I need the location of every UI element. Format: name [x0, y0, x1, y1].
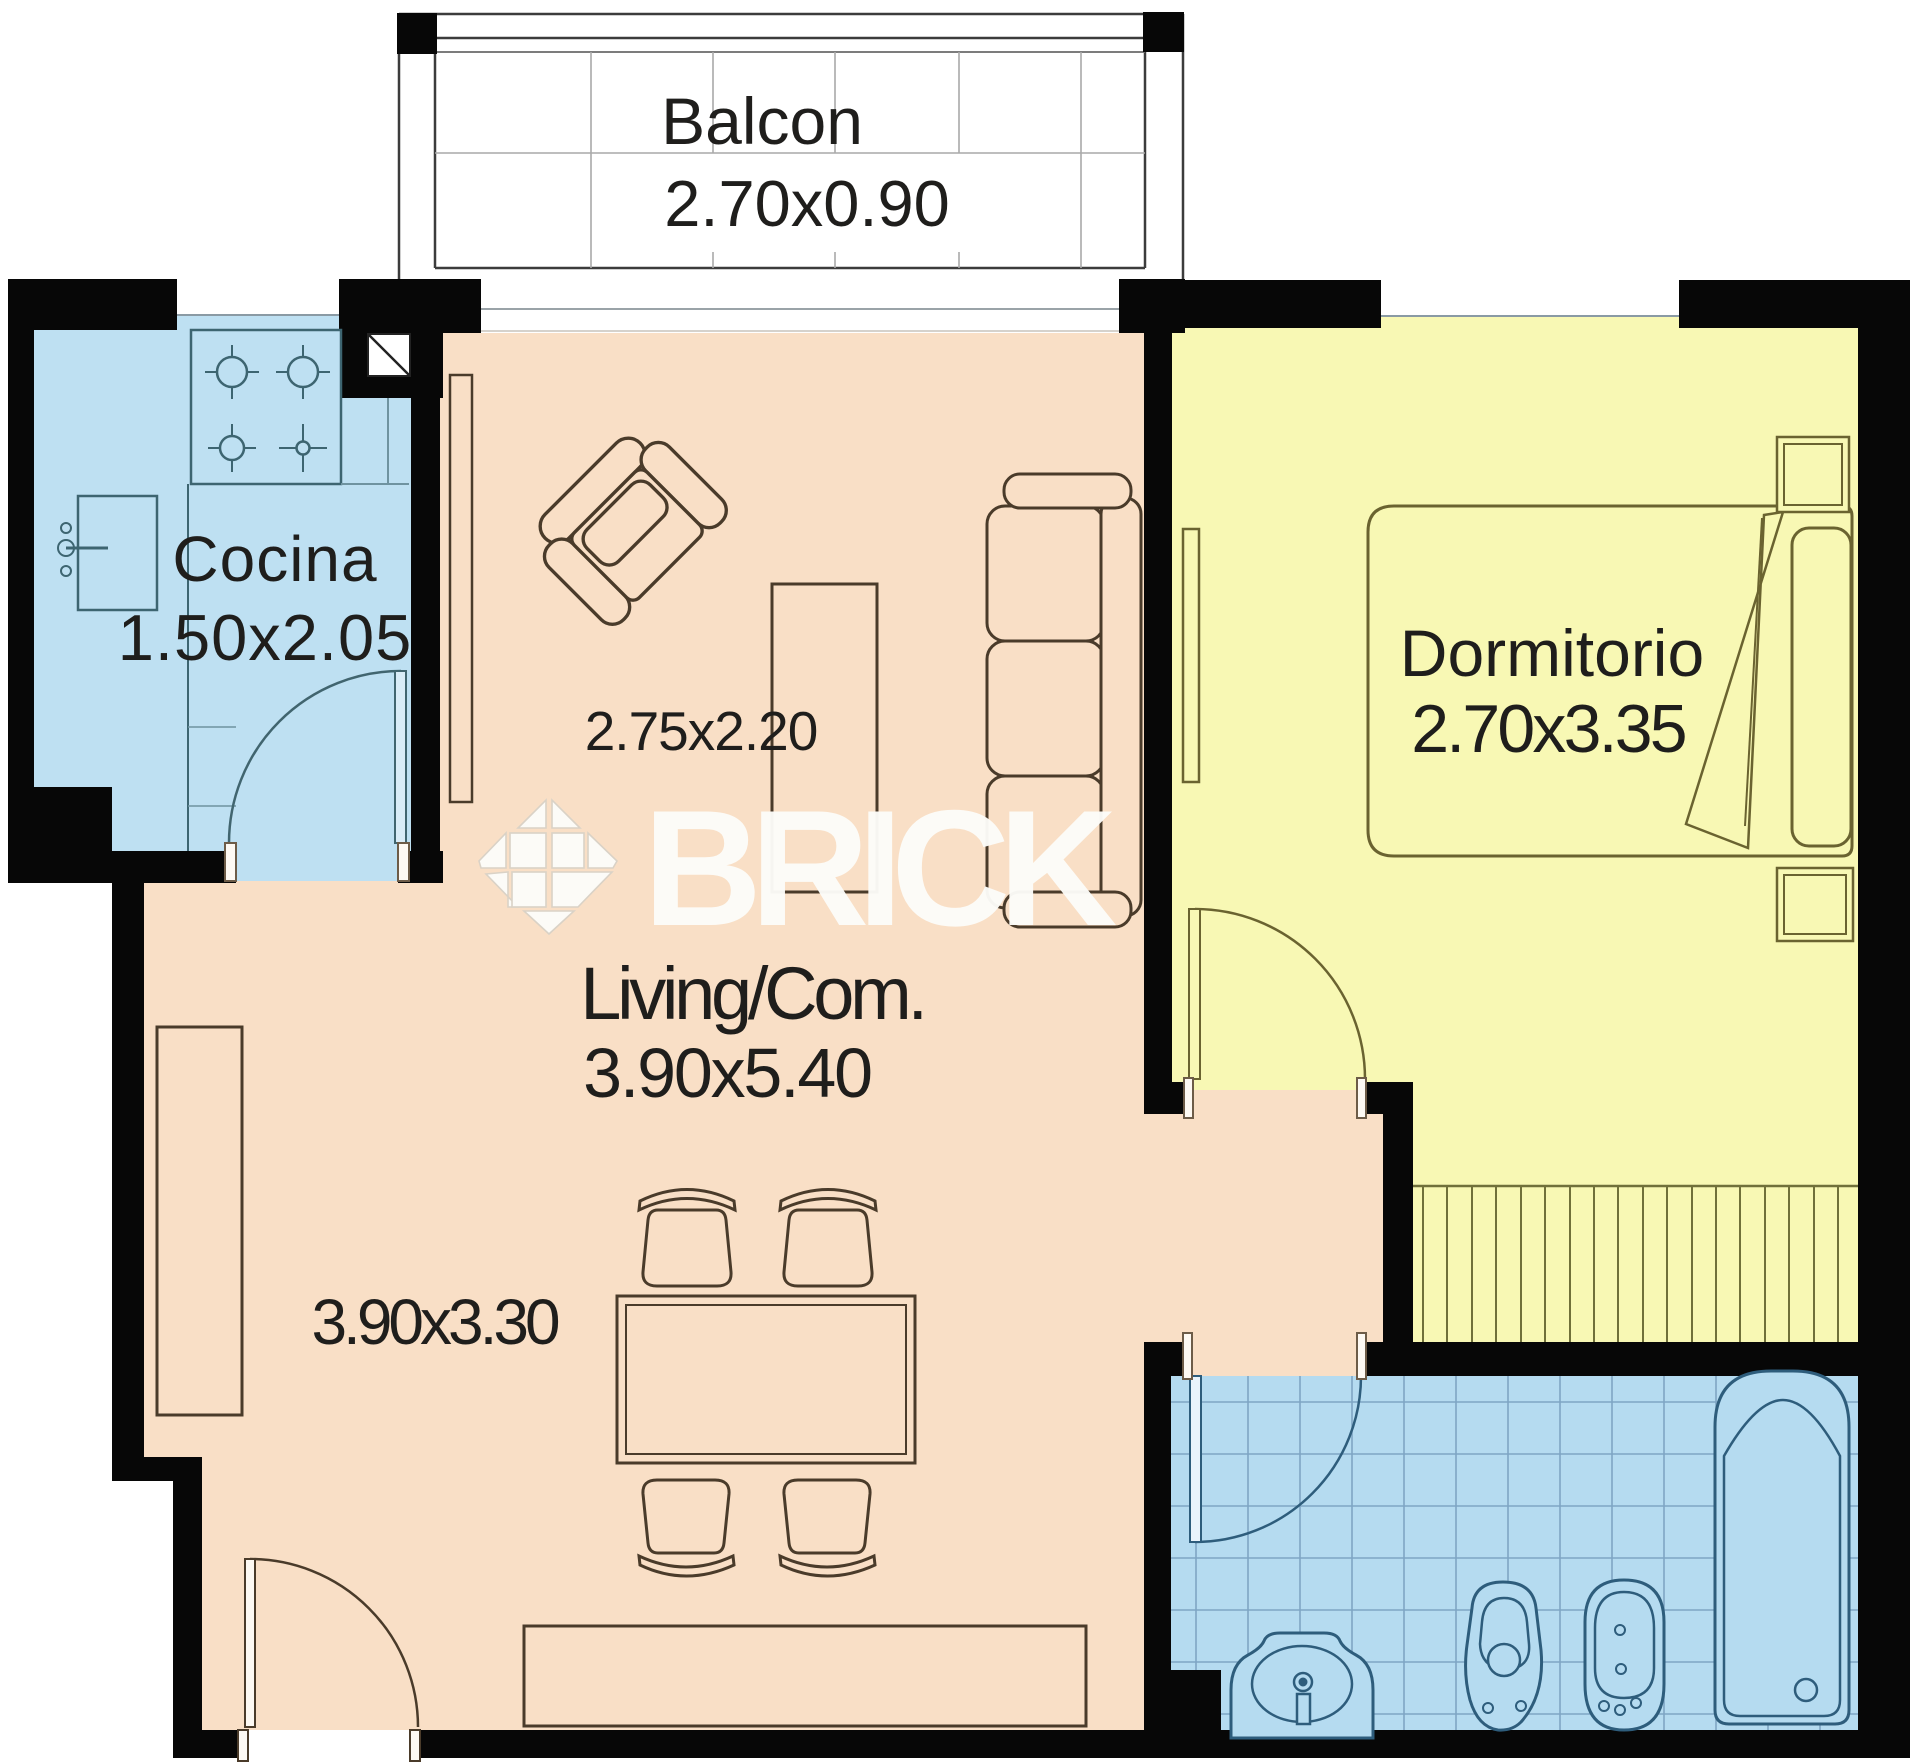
svg-text:3.90x3.30: 3.90x3.30	[311, 1286, 559, 1358]
svg-text:Living/Com.: Living/Com.	[580, 952, 923, 1035]
svg-text:3.90x5.40: 3.90x5.40	[583, 1034, 871, 1112]
svg-text:2.70x0.90: 2.70x0.90	[664, 167, 950, 240]
svg-text:Cocina: Cocina	[172, 523, 377, 595]
svg-text:2.75x2.20: 2.75x2.20	[585, 700, 818, 762]
svg-text:Dormitorio: Dormitorio	[1400, 616, 1704, 690]
svg-text:1.50x2.05: 1.50x2.05	[118, 601, 413, 674]
svg-text:2.70x3.35: 2.70x3.35	[1411, 691, 1685, 767]
svg-text:Balcon: Balcon	[661, 84, 863, 158]
svg-text:BRICK: BRICK	[643, 776, 1116, 960]
